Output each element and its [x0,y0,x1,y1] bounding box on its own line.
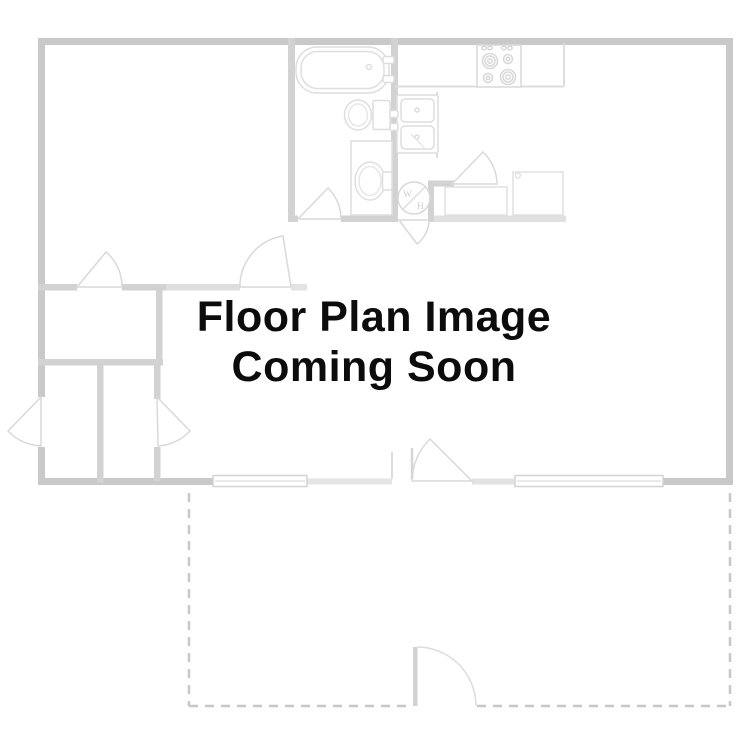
wall-bottom-left [38,478,213,485]
window-right-icon [515,476,663,487]
interior-walls [38,38,566,483]
bathroom-fixtures [296,47,394,215]
wall-main-a [38,284,77,291]
wall-bedroom-bathroom [288,38,295,219]
placeholder-text-line2: Coming Soon [0,342,748,392]
wall-bottom-faint-1 [305,479,392,485]
wall-hall-b [341,216,398,223]
wall-right [726,38,733,485]
window-left-icon [213,476,307,487]
water-heater-icon: W H [398,182,430,244]
wall-hall-c [429,216,566,223]
gate-door-icon [413,647,476,706]
lower-closet-door-swing-icon [157,397,190,446]
placeholder-text-line1: Floor Plan Image [0,292,748,342]
bedroom-door-swing-icon [240,236,291,287]
exterior-door-swing-icon [8,397,41,446]
wall-main-b2 [166,284,240,291]
bathroom-door-swing-icon [298,188,341,219]
wall-lowercloset-right-b [154,447,161,481]
placeholder-text: Floor Plan Image Coming Soon [0,292,748,392]
stove-icon [477,45,521,87]
wall-hall-a [288,216,298,223]
water-heater-door-swing-icon [399,220,429,244]
floorplan-placeholder-image: W H Floor Plan Image Coming Soon [0,0,750,750]
vanity-sink-icon [351,141,392,215]
wall-main-stub [291,284,307,291]
wall-kitchen-stub [428,181,454,187]
toilet-icon [345,100,391,130]
closet-door-swing-icon [77,252,122,287]
water-heater-label-h: H [417,202,424,212]
wall-bottom-right [663,478,733,485]
patio-dashed-outline [189,493,731,706]
bathtub-icon [296,47,394,93]
wall-bottom-faint-2 [472,479,515,485]
wall-top [38,38,733,45]
kitchen-sink-icon [390,95,438,153]
kitchen-door-swing-icon [452,152,497,184]
water-heater-label-w: W [403,190,412,200]
patio-door-swing-icon [412,439,472,481]
